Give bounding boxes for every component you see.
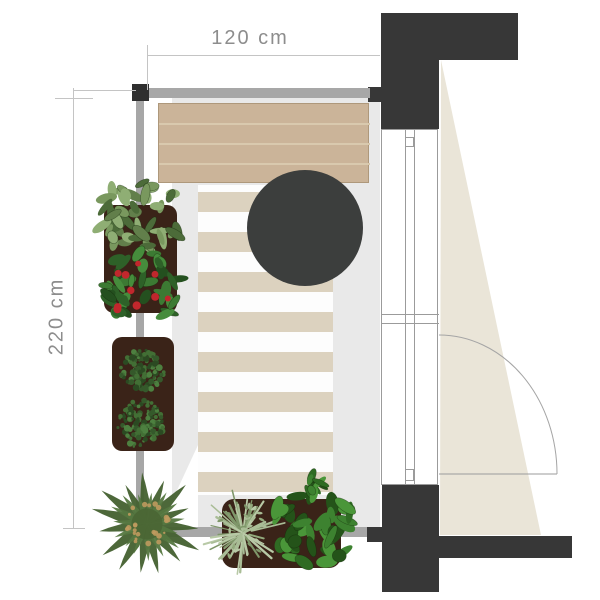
frame-mullion-line	[405, 130, 406, 486]
planter-bottom	[222, 499, 341, 568]
rug-stripe	[198, 432, 333, 452]
railing-left-bar	[136, 98, 144, 537]
wall-bottom-vertical	[382, 485, 439, 592]
rug-stripe	[198, 392, 333, 412]
width-dimension-label: 120 cm	[180, 27, 320, 50]
sunlight-triangle	[440, 60, 541, 535]
planter-left-upper	[104, 205, 177, 313]
balcony-floor-plan: 120 cm 220 cm	[0, 0, 600, 600]
wall-bottom-horizontal	[439, 536, 572, 558]
door-swing-arc	[439, 335, 557, 474]
frame-mullion-line	[414, 130, 415, 486]
palm-frond	[147, 492, 167, 524]
bench-plank-line	[159, 163, 370, 165]
wall-railing-stub-top	[368, 87, 382, 102]
bench-plank-line	[159, 143, 370, 145]
width-dimension-line	[147, 55, 380, 56]
width-dimension-tick	[147, 45, 148, 90]
rug-stripe	[198, 352, 333, 372]
palm-frond	[147, 481, 164, 525]
wall-top-vertical	[381, 56, 439, 129]
height-dimension-label: 220 cm	[46, 247, 69, 387]
height-dimension-line	[73, 88, 74, 528]
door-window-frame	[381, 129, 438, 485]
frame-detail-tick	[405, 469, 414, 481]
frame-detail-tick	[405, 137, 414, 147]
wooden-bench	[158, 103, 369, 183]
height-dimension-tick-top	[55, 98, 93, 99]
round-table	[247, 170, 363, 286]
wall-top-horizontal	[381, 13, 518, 60]
wall-railing-stub-bottom	[367, 527, 383, 542]
height-dimension-ext-line	[73, 90, 136, 91]
planter-left-lower	[112, 337, 174, 451]
railing-top-bar	[140, 88, 370, 98]
height-dimension-tick-bottom	[63, 528, 85, 529]
palm-frond	[146, 493, 152, 524]
frame-transom-line	[382, 314, 439, 315]
rug-stripe	[198, 472, 333, 492]
door-swing	[439, 335, 557, 474]
bench-plank-line	[159, 123, 370, 125]
frame-transom-line	[382, 323, 439, 324]
rug-stripe	[198, 312, 333, 332]
